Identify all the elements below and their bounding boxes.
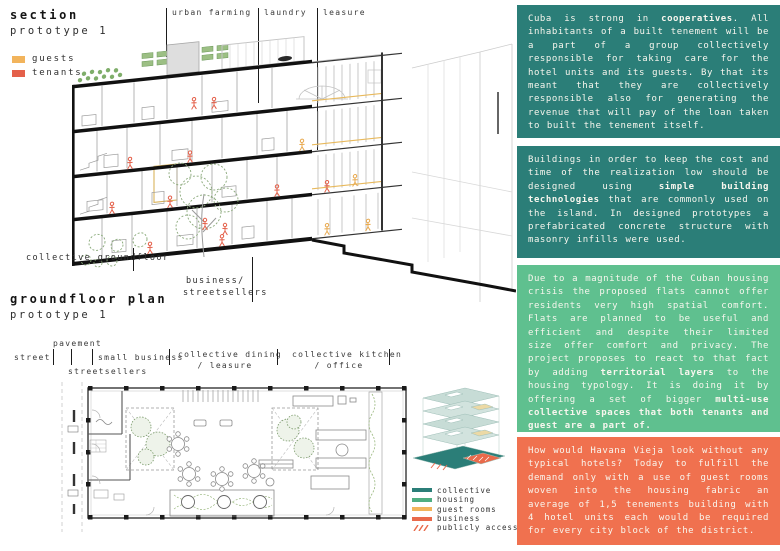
zone-tick	[71, 349, 72, 365]
zone-street: street	[14, 353, 50, 362]
zone-small-business: small business	[98, 353, 166, 362]
ground-line	[312, 240, 516, 291]
zone-tick	[53, 349, 54, 365]
zone-pavement: pavement	[53, 339, 102, 348]
groundfloor-plants	[89, 229, 147, 254]
slab-extensions	[312, 50, 402, 238]
annotation-line-collective-groundfloor	[133, 248, 134, 271]
text-block-cooperatives: Cuba is strong in cooperatives. All inha…	[517, 5, 780, 138]
business-swatch	[412, 517, 432, 521]
text-block-technologies: Buildings in order to keep the cost and …	[517, 146, 780, 258]
text-block-havana-vieja-paragraph: How would Havana Vieja look without any …	[528, 445, 769, 539]
callout-leasure: leasure	[323, 8, 366, 17]
publicly-accessible-swatch	[412, 525, 432, 531]
interior-walls	[97, 66, 292, 258]
groundfloor-plan-drawing	[26, 382, 418, 550]
section-title-text: section	[10, 8, 108, 22]
text-block-territorial-layers: Due to a magnitude of the Cuban housing …	[517, 265, 780, 432]
roof-core-box	[167, 42, 199, 75]
business-label: business	[437, 514, 480, 523]
tenants-swatch	[12, 70, 25, 77]
zone-kitchen-line1: collective kitchen	[292, 350, 386, 359]
guest-figures	[299, 132, 370, 238]
housing-label: housing	[437, 495, 475, 504]
zone-tick	[389, 349, 390, 365]
stack-layers	[413, 388, 505, 469]
text-block-territorial-layers-paragraph: Due to a magnitude of the Cuban housing …	[528, 273, 769, 434]
annotation-streetsellers: streetsellers	[183, 288, 268, 298]
zone-tick	[277, 349, 278, 365]
annotation-business: business/	[186, 276, 245, 286]
collective-swatch	[412, 488, 432, 492]
callout-laundry: laundry	[264, 8, 307, 17]
zone-streetsellers: streetsellers	[68, 367, 148, 376]
housing-swatch	[412, 498, 432, 502]
callout-urban-farming: urban farming	[172, 8, 252, 17]
floor-stack-diagram	[405, 386, 513, 484]
floor-slabs	[72, 60, 312, 266]
text-block-cooperatives-paragraph: Cuba is strong in cooperatives. All inha…	[528, 13, 769, 134]
text-block-havana-vieja: How would Havana Vieja look without any …	[517, 437, 780, 545]
zone-kitchen-line2: / office	[292, 361, 386, 370]
zone-dining-line2: / leasure	[178, 361, 272, 370]
guests-swatch	[12, 56, 25, 63]
presentation-board: { "section_panel": { "title": "section",…	[0, 0, 780, 551]
zone-dining: collective dining / leasure	[178, 350, 272, 370]
annotation-collective-groundfloor: collective groundfloor	[26, 253, 169, 263]
guest-rooms-swatch	[412, 507, 432, 511]
guest-rooms-label: guest rooms	[437, 505, 497, 514]
zone-kitchen: collective kitchen / office	[292, 350, 386, 370]
zone-tick	[92, 349, 93, 365]
street-dashed-lines	[62, 382, 82, 532]
plan-title-text: groundfloor plan	[10, 292, 167, 306]
plan-outline	[88, 388, 406, 518]
zone-tick	[169, 349, 170, 365]
collective-label: collective	[437, 486, 491, 495]
annotation-line-business	[252, 257, 253, 302]
text-block-technologies-paragraph: Buildings in order to keep the cost and …	[528, 154, 769, 248]
plan-subtitle: prototype 1	[10, 309, 167, 321]
roof-object	[278, 55, 292, 61]
zone-dining-line1: collective dining	[178, 350, 272, 359]
cut-building	[72, 22, 402, 266]
plan-title: groundfloor plan prototype 1	[10, 292, 167, 321]
